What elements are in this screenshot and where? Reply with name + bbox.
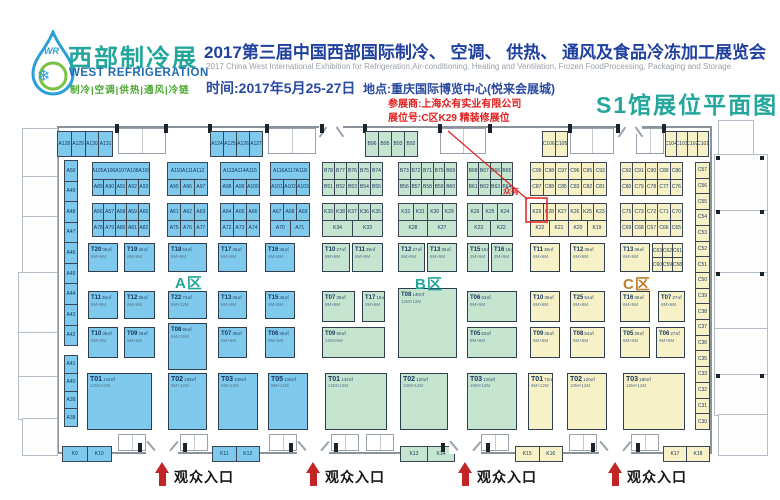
booth-T11: T1136㎡6M×6M <box>352 243 383 272</box>
booth-K29: K29 <box>443 204 457 220</box>
booth-B71: B71 <box>422 163 433 179</box>
booth-A95: A95 <box>168 180 180 196</box>
booth-C79: C79 <box>633 180 644 196</box>
booth-T16: T1636㎡6M×6M <box>265 243 295 272</box>
booth-A124: A124 <box>211 132 223 156</box>
booth-T12: T1236㎡6M×6M <box>124 291 155 319</box>
booth-B77: B77 <box>335 163 346 179</box>
booth-T16: T1618㎡3M×6M <box>491 243 513 272</box>
booth-T11: T1136㎡6M×6M <box>530 243 560 272</box>
wall-booth-strip: B96B95B93B92 <box>365 131 418 157</box>
booth-A45: A45 <box>65 264 77 284</box>
booth-T13: T1336㎡6M×6M <box>620 243 650 272</box>
booth-block-row: B56B57B58B59B60 <box>399 180 456 196</box>
entrance-label: 观众入口 <box>627 467 687 487</box>
booth-K22: K22 <box>491 221 513 237</box>
booth-C63: C63 <box>653 244 662 257</box>
door-dot-marker <box>760 210 764 214</box>
booth-A72: A72 <box>221 221 233 237</box>
booth-C59: C59 <box>663 258 672 271</box>
booth-A60: A60 <box>139 204 149 220</box>
door-post-marker <box>138 443 142 452</box>
booth-T12: T1227㎡6M×6M <box>398 243 425 272</box>
booth-B69: B69 <box>445 163 456 179</box>
booth-block: C63C62C61C60C59C58 <box>652 243 683 272</box>
booth-C58: C58 <box>673 258 682 271</box>
booth-A96: A96 <box>181 180 193 196</box>
booth-block-row: A64A65A66 <box>221 204 259 220</box>
booth-T06: T0636㎡6M×6M <box>265 327 295 358</box>
booth-A50: A50 <box>65 161 77 181</box>
booth-C73: C73 <box>633 204 644 220</box>
booth-K9: K9 <box>63 447 87 461</box>
booth-C75: C75 <box>621 204 632 220</box>
booth-C55: C55 <box>696 194 709 209</box>
booth-T25: T2554㎡9M×6M <box>570 291 605 322</box>
booth-T10: T1027㎡6M×6M <box>322 243 350 272</box>
booth-block-row: A70A71 <box>271 221 309 237</box>
booth-C105: C105 <box>556 132 568 156</box>
door-dot-marker <box>760 374 764 378</box>
booth-block: A113A114A115A98A99A100 <box>220 162 260 196</box>
wall-booth-pair: K9K10 <box>62 446 112 462</box>
exhibition-title-cn: 2017第三届中国西部国际制冷、 空调、 供热、 通风及食品冷冻加工展览会 <box>204 38 776 63</box>
booth-K37: K37 <box>347 204 358 220</box>
booth-A103: A103 <box>297 180 309 196</box>
booth-K18: K18 <box>687 447 709 461</box>
booth-block-row: A116A117A118 <box>271 163 309 179</box>
entrance-arrow-icon <box>155 462 169 486</box>
booth-B65: B65 <box>502 163 512 179</box>
booth-A89: A89 <box>93 180 103 196</box>
booth-K12: K12 <box>237 447 260 461</box>
booth-A41: A41 <box>65 356 77 373</box>
booth-B76: B76 <box>347 163 358 179</box>
booth-B54: B54 <box>359 180 370 196</box>
booth-C80: C80 <box>621 180 632 196</box>
booth-K28: K28 <box>399 221 427 237</box>
booth-block-row: A89A90A91A92A93 <box>93 180 149 196</box>
booth-C61: C61 <box>673 244 682 257</box>
booth-block: K39K38K37K36K35K34K33 <box>322 203 383 237</box>
left-wing-room <box>22 216 58 274</box>
booth-C96: C96 <box>569 163 581 179</box>
booth-T05: T0536㎡6M×6M <box>620 327 650 358</box>
booth-A63: A63 <box>195 204 207 220</box>
booth-C81: C81 <box>594 180 606 196</box>
booth-block-row: A72A73A74 <box>221 221 259 237</box>
booth-A47: A47 <box>65 223 77 243</box>
booth-A70: A70 <box>271 221 290 237</box>
entrance-arrow-icon <box>608 462 622 486</box>
booth-T13: T1336㎡6M×6M <box>218 291 247 319</box>
booth-K27: K27 <box>428 221 456 237</box>
booth-K30: K30 <box>428 204 442 220</box>
exhibition-venue: 地点:重庆国际博览中心(悦来会展城) <box>363 80 555 97</box>
booth-block-row: B78B77B76B75B74 <box>323 163 382 179</box>
booth-block-row: K39K38K37K36K35 <box>323 204 382 220</box>
booth-block-row: B61B62B63B64 <box>468 180 512 196</box>
booth-A39: A39 <box>65 392 77 409</box>
booth-C83: C83 <box>569 180 581 196</box>
booth-block-row: C99C98C97C96C95C93 <box>531 163 606 179</box>
booth-B93: B93 <box>392 132 404 156</box>
booth-block: C99C98C97C96C95C93C87C88C85C83C82C81 <box>530 162 607 196</box>
booth-A99: A99 <box>234 180 246 196</box>
booth-block-row: C92C91C90C89C86 <box>621 163 682 179</box>
booth-C52: C52 <box>696 242 709 257</box>
snowflake-icon: ❄ <box>37 66 50 86</box>
booth-block: A61A62A63A75A76A77 <box>167 203 208 237</box>
edge-booth-strip: C57C56C55C54C53C52C51C50C39C38C37C36C35C… <box>695 162 710 430</box>
empty-booth-frame <box>440 128 486 154</box>
left-wing-room <box>18 272 58 334</box>
booth-K23: K23 <box>468 221 490 237</box>
wall-booth-strip: C104C103C102C101 <box>665 131 709 157</box>
entrance-label: 观众入口 <box>174 467 234 487</box>
wall-booth-pair: K13K14 <box>400 446 455 462</box>
booth-block: A56A57A58A59A60A78A79A80A81A82 <box>92 203 150 237</box>
booth-block-row: B68B67B66B65 <box>468 163 512 179</box>
booth-A110A111A112: A110A111A112 <box>168 163 207 179</box>
booth-block: A116A117A118A101A102A103 <box>270 162 310 196</box>
booth-T09: T0936㎡6M×6M <box>530 327 560 358</box>
right-wing-room <box>714 210 768 274</box>
booth-C95: C95 <box>582 163 594 179</box>
booth-B56: B56 <box>399 180 410 196</box>
booth-K28: K28 <box>544 204 556 220</box>
booth-K38: K38 <box>335 204 346 220</box>
door-post-marker <box>438 124 442 133</box>
left-wing-room <box>18 332 58 378</box>
booth-C89: C89 <box>658 163 669 179</box>
booth-C87: C87 <box>531 180 543 196</box>
booth-block: A67A68A69A70A71 <box>270 203 310 237</box>
booth-C32: C32 <box>696 383 709 398</box>
booth-K29: K29 <box>531 204 543 220</box>
booth-block-row: K34K33 <box>323 221 382 237</box>
booth-K39: K39 <box>323 204 334 220</box>
booth-A69: A69 <box>297 204 309 220</box>
booth-K34: K34 <box>323 221 352 237</box>
booth-C93: C93 <box>594 163 606 179</box>
door-post-marker <box>289 443 293 452</box>
booth-block-row: C75C73C72C71C70 <box>621 204 682 220</box>
booth-block: K26K25K24K23K22 <box>467 203 513 237</box>
booth-block-row: A110A111A112 <box>168 163 207 179</box>
empty-booth-frame <box>570 128 614 154</box>
booth-T17: T1718㎡3M×6M <box>362 291 385 322</box>
entrance-label: 观众入口 <box>325 467 385 487</box>
right-wing-room <box>718 414 768 456</box>
booth-A42: A42 <box>65 326 77 346</box>
door-post-marker <box>636 443 640 452</box>
booth-T11: T1136㎡6M×6M <box>88 291 118 319</box>
booth-T02: T02108㎡9M×12M <box>168 373 207 430</box>
booth-block: A64A65A66A72A73A74 <box>220 203 260 237</box>
floorplan-title: S1馆展位平面图 <box>596 86 778 120</box>
booth-C86: C86 <box>671 163 682 179</box>
booth-C69: C69 <box>621 221 632 237</box>
booth-B95: B95 <box>379 132 391 156</box>
booth-B66: B66 <box>491 163 501 179</box>
booth-block: B78B77B76B75B74B51B52B53B54B55 <box>322 162 383 196</box>
booth-A91: A91 <box>116 180 126 196</box>
right-wing-room <box>718 120 754 156</box>
booth-block-row: A101A102A103 <box>271 180 309 196</box>
booth-C90: C90 <box>646 163 657 179</box>
booth-B51: B51 <box>323 180 334 196</box>
empty-booth-frame <box>268 128 316 154</box>
booth-T19: T1936㎡6M×6M <box>124 243 155 272</box>
booth-T08: T0854㎡9M×6M <box>570 327 605 358</box>
booth-block-row: B51B52B53B54B55 <box>323 180 382 196</box>
booth-A56: A56 <box>93 204 103 220</box>
booth-C76: C76 <box>671 180 682 196</box>
booth-A93: A93 <box>139 180 149 196</box>
door-dot-marker <box>716 374 720 378</box>
booth-A44: A44 <box>65 284 77 304</box>
booth-K33: K33 <box>353 221 382 237</box>
booth-C97: C97 <box>556 163 568 179</box>
booth-T06: T0663㎡9M×6M <box>467 291 517 322</box>
booth-T05: T0563㎡9M×6M <box>467 327 517 358</box>
booth-B59: B59 <box>434 180 445 196</box>
booth-B73: B73 <box>399 163 410 179</box>
booth-block-row: A78A79A80A81A82 <box>93 221 149 237</box>
logo-name-en: WEST REFRIGERATION <box>69 67 209 79</box>
booth-C99: C99 <box>531 163 543 179</box>
booth-T02: T02120㎡10M×12M <box>567 373 607 430</box>
booth-T22: T2272㎡6M×12M <box>168 291 207 319</box>
booth-A68: A68 <box>284 204 296 220</box>
booth-B78: B78 <box>323 163 334 179</box>
booth-block-row: K26K25K24 <box>468 204 512 220</box>
booth-A59: A59 <box>127 204 137 220</box>
booth-A128: A128 <box>58 132 71 156</box>
booth-K25: K25 <box>582 204 594 220</box>
booth-A113A114A115: A113A114A115 <box>221 163 259 179</box>
booth-A66: A66 <box>247 204 259 220</box>
booth-block-row: C69C68C67C66C65 <box>621 221 682 237</box>
left-wing-room <box>22 128 58 178</box>
booth-A43: A43 <box>65 305 77 325</box>
booth-B74: B74 <box>371 163 382 179</box>
booth-B75: B75 <box>359 163 370 179</box>
booth-A74: A74 <box>247 221 259 237</box>
exhibition-title-en: 2017 China West International Exhibition… <box>206 62 772 71</box>
booth-A116A117A118: A116A117A118 <box>271 163 309 179</box>
left-wing-room <box>22 176 58 218</box>
empty-booth-frame <box>366 434 394 451</box>
booth-C53: C53 <box>696 226 709 241</box>
booth-T12: T1236㎡6M×6M <box>570 243 605 272</box>
booth-block-row: K32K31K30K29 <box>399 204 456 220</box>
booth-T13: T1336㎡6M×6M <box>427 243 457 272</box>
booth-T20: T2036㎡6M×6M <box>88 243 118 272</box>
booth-B70: B70 <box>434 163 445 179</box>
booth-T01: T01144㎡12M×12M <box>87 373 152 430</box>
door-post-marker <box>320 124 324 133</box>
booth-C106: C106 <box>543 132 555 156</box>
booth-A102: A102 <box>284 180 296 196</box>
door-dot-marker <box>716 210 720 214</box>
booth-block-row: A105A106A107A108A109 <box>93 163 149 179</box>
booth-T10: T1036㎡6M×6M <box>88 327 118 358</box>
booth-block: A110A111A112A95A96A97 <box>167 162 208 196</box>
booth-A90: A90 <box>104 180 114 196</box>
door-dot-marker <box>716 272 720 276</box>
booth-T01: T01144㎡12M×12M <box>325 373 387 430</box>
booth-T15: T1536㎡6M×6M <box>265 291 295 319</box>
booth-T09: T0936㎡6M×6M <box>124 327 155 358</box>
booth-C35: C35 <box>696 351 709 366</box>
booth-C33: C33 <box>696 367 709 382</box>
empty-booth-frame <box>118 128 166 154</box>
edge-booth-strip: A50A49A48A47A46A45A44A43A42 <box>64 160 78 346</box>
door-post-marker <box>183 443 187 452</box>
booth-C78: C78 <box>646 180 657 196</box>
booth-K19: K19 <box>588 221 606 237</box>
exhibition-floorplan-image: { "header": { "logo_wr": "WR", "logo_cn"… <box>0 0 780 500</box>
booth-C70: C70 <box>671 204 682 220</box>
entrance-arrow-icon <box>306 462 320 486</box>
booth-K15: K15 <box>516 447 539 461</box>
booth-C91: C91 <box>633 163 644 179</box>
booth-T15: T1518㎡3M×6M <box>467 243 489 272</box>
booth-C77: C77 <box>658 180 669 196</box>
booth-A65: A65 <box>234 204 246 220</box>
booth-block-row: C87C88C85C83C82C81 <box>531 180 606 196</box>
door-post-marker <box>616 124 620 133</box>
booth-C31: C31 <box>696 399 709 414</box>
floorplan-canvas: A128A129A130A131A124A125A126A127B96B95B9… <box>16 116 768 494</box>
booth-K10: K10 <box>88 447 112 461</box>
booth-B60: B60 <box>445 180 456 196</box>
booth-A100: A100 <box>247 180 259 196</box>
booth-block: C92C91C90C89C86C80C79C78C77C76 <box>620 162 683 196</box>
zone-label-A区: A区 <box>175 272 203 293</box>
booth-block-row: A95A96A97 <box>168 180 207 196</box>
booth-block-row: A75A76A77 <box>168 221 207 237</box>
booth-K26: K26 <box>468 204 482 220</box>
booth-C68: C68 <box>633 221 644 237</box>
booth-K36: K36 <box>359 204 370 220</box>
right-wing-room <box>714 374 768 416</box>
booth-block: K29K28K27K26K25K23K22K21K20K19 <box>530 203 607 237</box>
booth-T07: T0727㎡6M×6M <box>658 291 685 322</box>
booth-B72: B72 <box>411 163 422 179</box>
booth-A105A106A107A108A109: A105A106A107A108A109 <box>93 163 149 179</box>
booth-K22: K22 <box>531 221 549 237</box>
door-post-marker <box>568 124 572 133</box>
booth-T07: T0736㎡6M×6M <box>322 291 355 322</box>
door-post-marker <box>265 124 269 133</box>
wall-booth-strip: A128A129A130A131 <box>57 131 113 157</box>
door-post-marker <box>164 124 168 133</box>
booth-T03: T03180㎡15M×12M <box>623 373 685 430</box>
booth-T02: T02120㎡10M×12M <box>400 373 448 430</box>
booth-C37: C37 <box>696 320 709 335</box>
booth-T03: T03108㎡9M×12M <box>218 373 258 430</box>
booth-block-row: A113A114A115 <box>221 163 259 179</box>
zone-label-C区: C区 <box>623 273 651 294</box>
zone-label-B区: B区 <box>415 273 443 294</box>
booth-A130: A130 <box>86 132 99 156</box>
entrance-label: 观众入口 <box>477 467 537 487</box>
left-wing-room <box>22 418 58 456</box>
logo-wr-text: WR <box>44 46 59 56</box>
wall-booth-pair: K15K16 <box>515 446 563 462</box>
booth-block: A105A106A107A108A109A89A90A91A92A93 <box>92 162 150 196</box>
booth-A76: A76 <box>181 221 193 237</box>
door-post-marker <box>486 443 490 452</box>
booth-T01: T0172㎡6M×12M <box>528 373 553 430</box>
booth-block-row: C63C62C61 <box>653 244 682 257</box>
booth-A97: A97 <box>195 180 207 196</box>
booth-K27: K27 <box>556 204 568 220</box>
entrance-arrow-icon <box>458 462 472 486</box>
booth-T17: T1736㎡6M×6M <box>218 243 247 272</box>
door-dot-marker <box>760 272 764 276</box>
booth-block-row: A56A57A58A59A60 <box>93 204 149 220</box>
door-post-marker <box>115 124 119 133</box>
booth-C51: C51 <box>696 257 709 272</box>
booth-block: B68B67B66B65B61B62B63B64 <box>467 162 513 196</box>
door-post-marker <box>488 124 492 133</box>
booth-C65: C65 <box>671 221 682 237</box>
booth-T10: T1036㎡6M×6M <box>530 291 560 322</box>
booth-C98: C98 <box>544 163 556 179</box>
booth-A58: A58 <box>116 204 126 220</box>
booth-K23: K23 <box>594 204 606 220</box>
booth-B61: B61 <box>468 180 478 196</box>
booth-block-row: A98A99A100 <box>221 180 259 196</box>
booth-K16: K16 <box>540 447 563 461</box>
booth-C71: C71 <box>658 204 669 220</box>
booth-C57: C57 <box>696 163 709 178</box>
booth-K13: K13 <box>401 447 427 461</box>
booth-block-row: K28K27 <box>399 221 456 237</box>
booth-B58: B58 <box>422 180 433 196</box>
right-wing-room <box>714 154 768 212</box>
booth-C72: C72 <box>646 204 657 220</box>
booth-C56: C56 <box>696 179 709 194</box>
booth-block-row: K22K21K20K19 <box>531 221 606 237</box>
booth-A98: A98 <box>221 180 233 196</box>
booth-C60: C60 <box>653 258 662 271</box>
booth-A49: A49 <box>65 182 77 202</box>
booth-B55: B55 <box>371 180 382 196</box>
booth-T08: T0890㎡6M×15M <box>168 323 207 370</box>
booth-C62: C62 <box>663 244 672 257</box>
booth-C39: C39 <box>696 289 709 304</box>
booth-B63: B63 <box>491 180 501 196</box>
booth-A38: A38 <box>65 409 77 426</box>
exhibitor-name-line: 参展商:上海众有实业有限公司 <box>388 98 521 112</box>
booth-A46: A46 <box>65 243 77 263</box>
booth-A79: A79 <box>104 221 114 237</box>
booth-T16: T1636㎡6M×6M <box>620 291 650 322</box>
booth-B53: B53 <box>347 180 358 196</box>
door-dot-marker <box>760 156 764 160</box>
booth-K32: K32 <box>399 204 413 220</box>
booth-K35: K35 <box>371 204 382 220</box>
logo-tagline: 制冷|空调|供热|通风|冷链 <box>70 82 190 96</box>
booth-A67: A67 <box>271 204 283 220</box>
booth-K11: K11 <box>213 447 236 461</box>
booth-K21: K21 <box>550 221 568 237</box>
